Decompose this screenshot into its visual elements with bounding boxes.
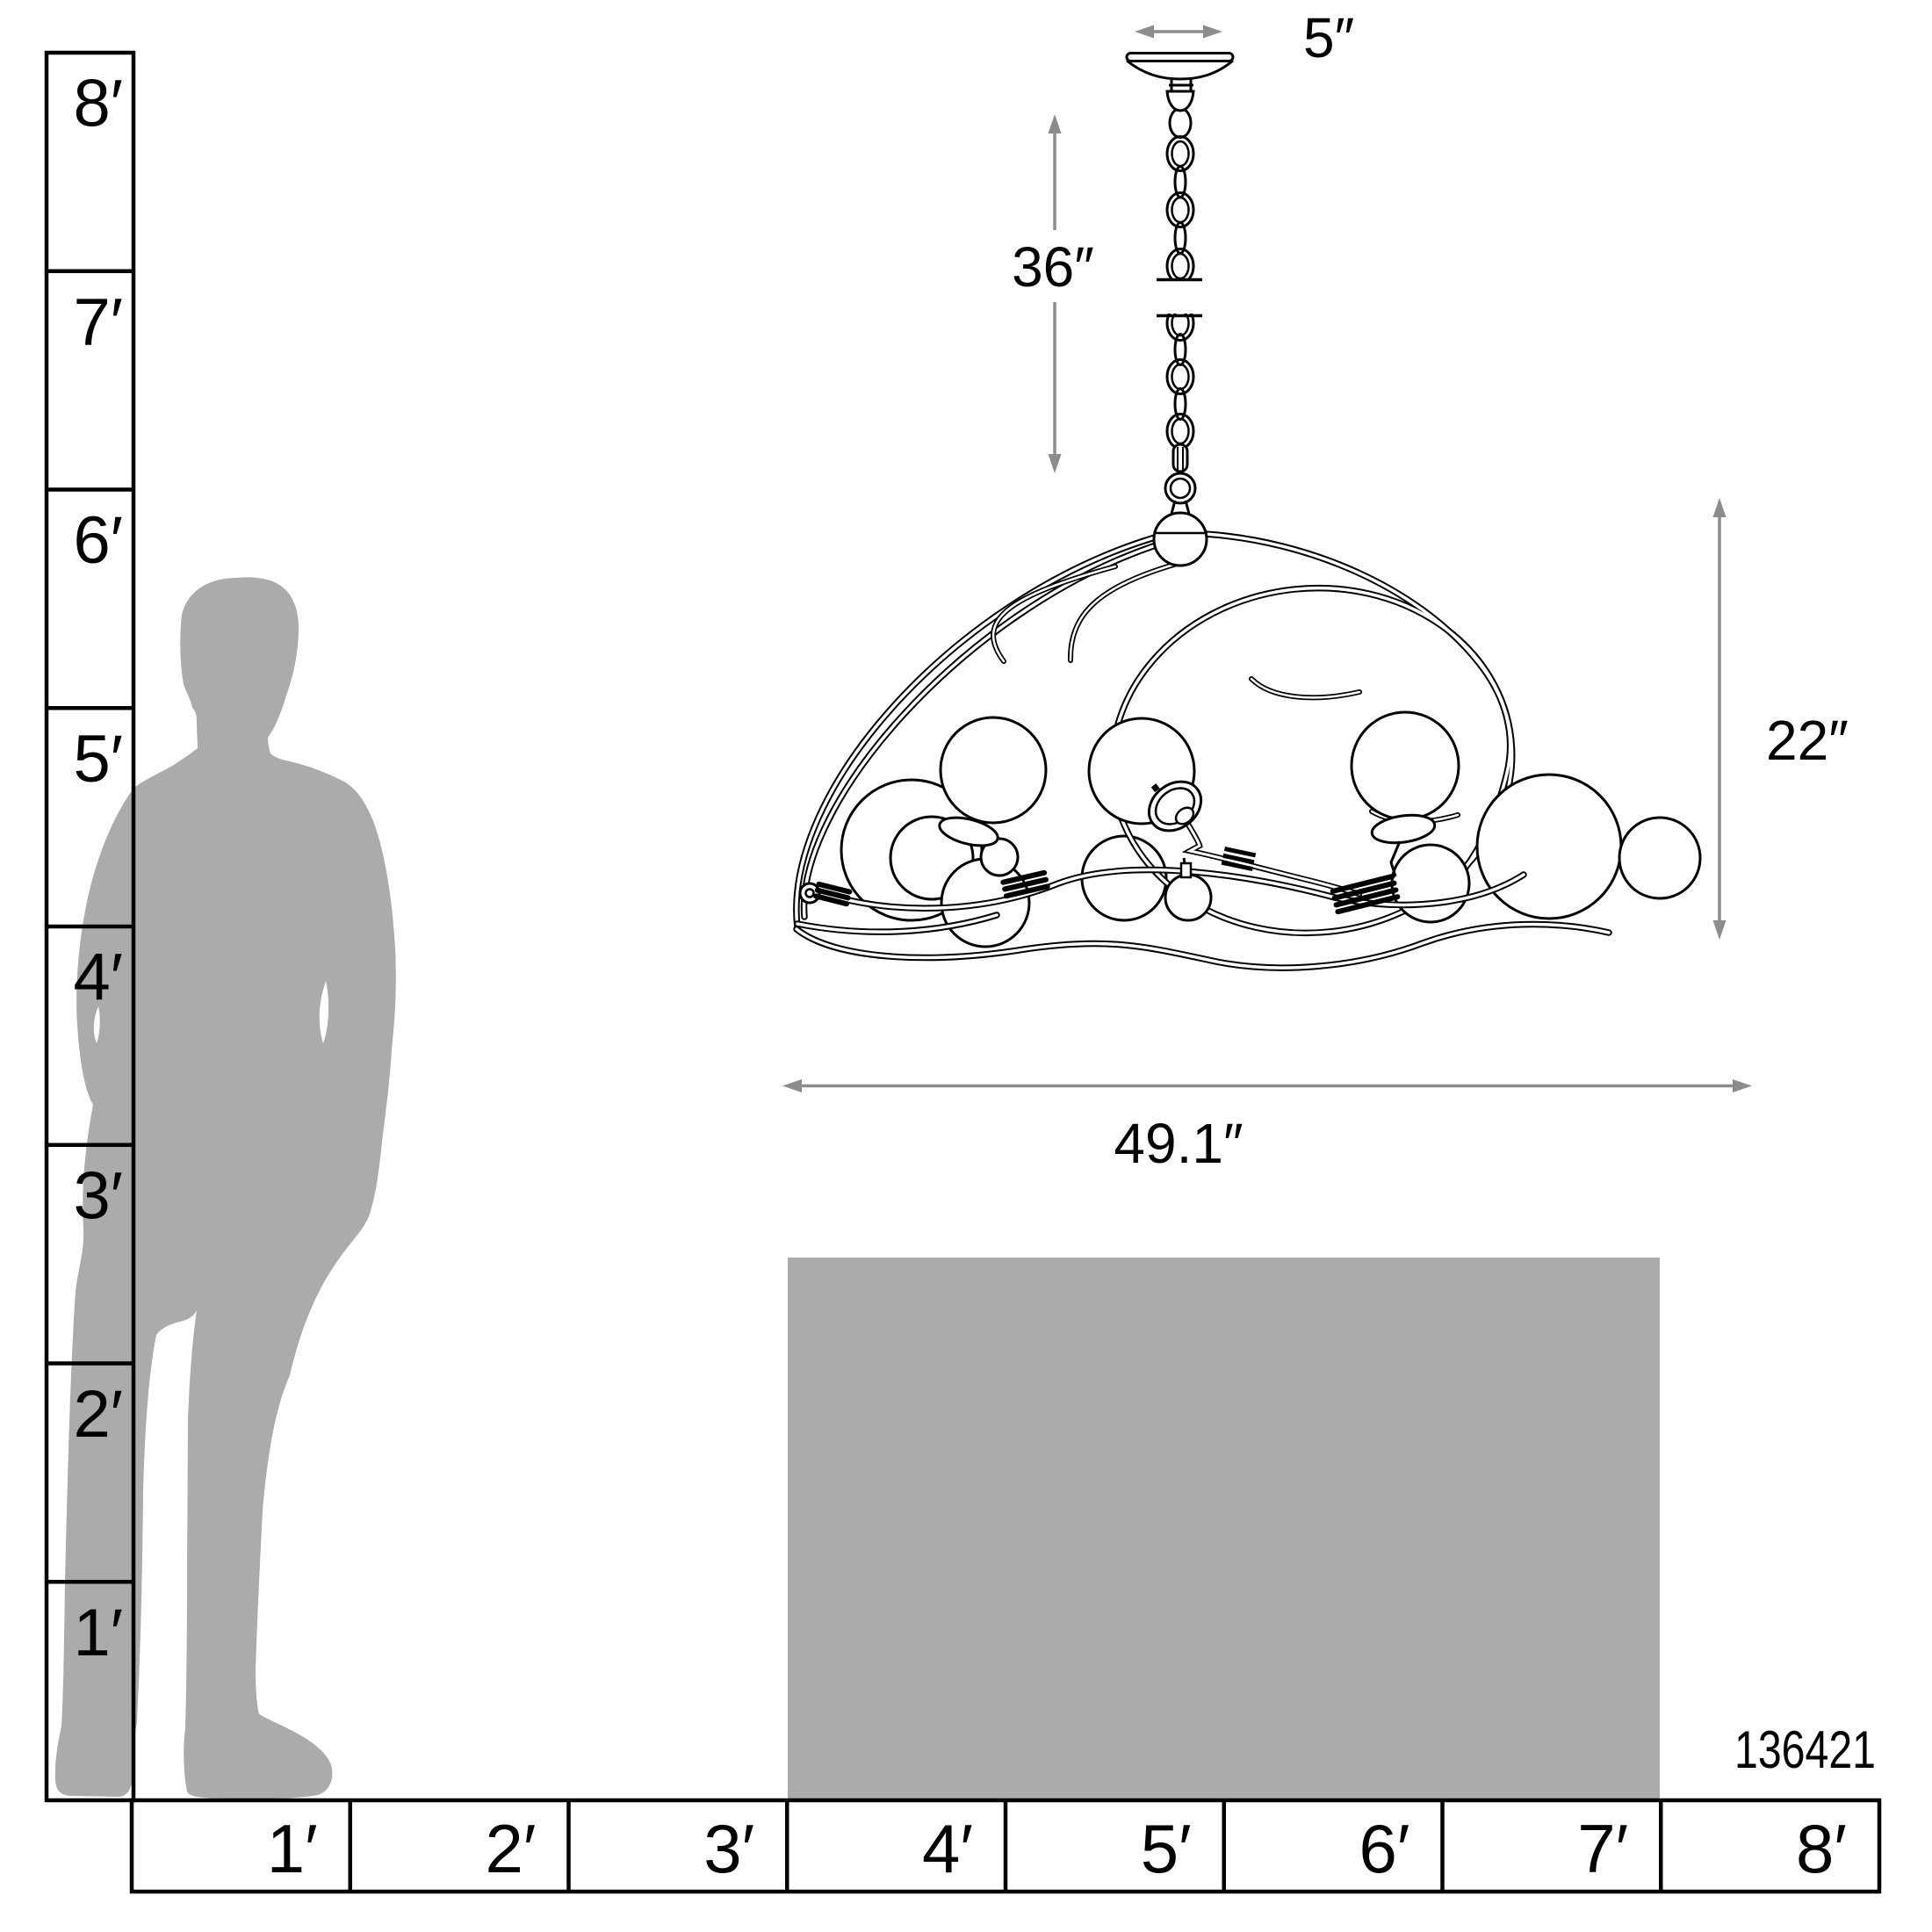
svg-text:5′: 5′ [73,722,123,797]
svg-text:4′: 4′ [73,941,123,1015]
svg-text:6′: 6′ [1359,1810,1409,1887]
svg-text:1′: 1′ [73,1596,123,1670]
svg-text:136421: 136421 [1734,1720,1876,1779]
svg-text:8′: 8′ [1796,1810,1847,1887]
svg-text:5′: 5′ [1141,1810,1192,1887]
svg-text:7′: 7′ [1577,1810,1628,1887]
svg-text:3′: 3′ [73,1158,123,1233]
svg-text:3′: 3′ [703,1810,754,1887]
svg-text:1′: 1′ [267,1810,318,1887]
svg-text:49.1″: 49.1″ [1114,1112,1243,1175]
svg-text:2′: 2′ [73,1377,123,1452]
svg-text:7′: 7′ [73,285,123,359]
svg-text:22″: 22″ [1766,709,1849,772]
svg-text:36″: 36″ [1012,235,1094,299]
svg-text:2′: 2′ [485,1810,536,1887]
svg-text:8′: 8′ [73,67,123,141]
svg-text:4′: 4′ [922,1810,973,1887]
svg-text:6′: 6′ [73,503,123,578]
svg-text:5″: 5″ [1303,6,1354,69]
